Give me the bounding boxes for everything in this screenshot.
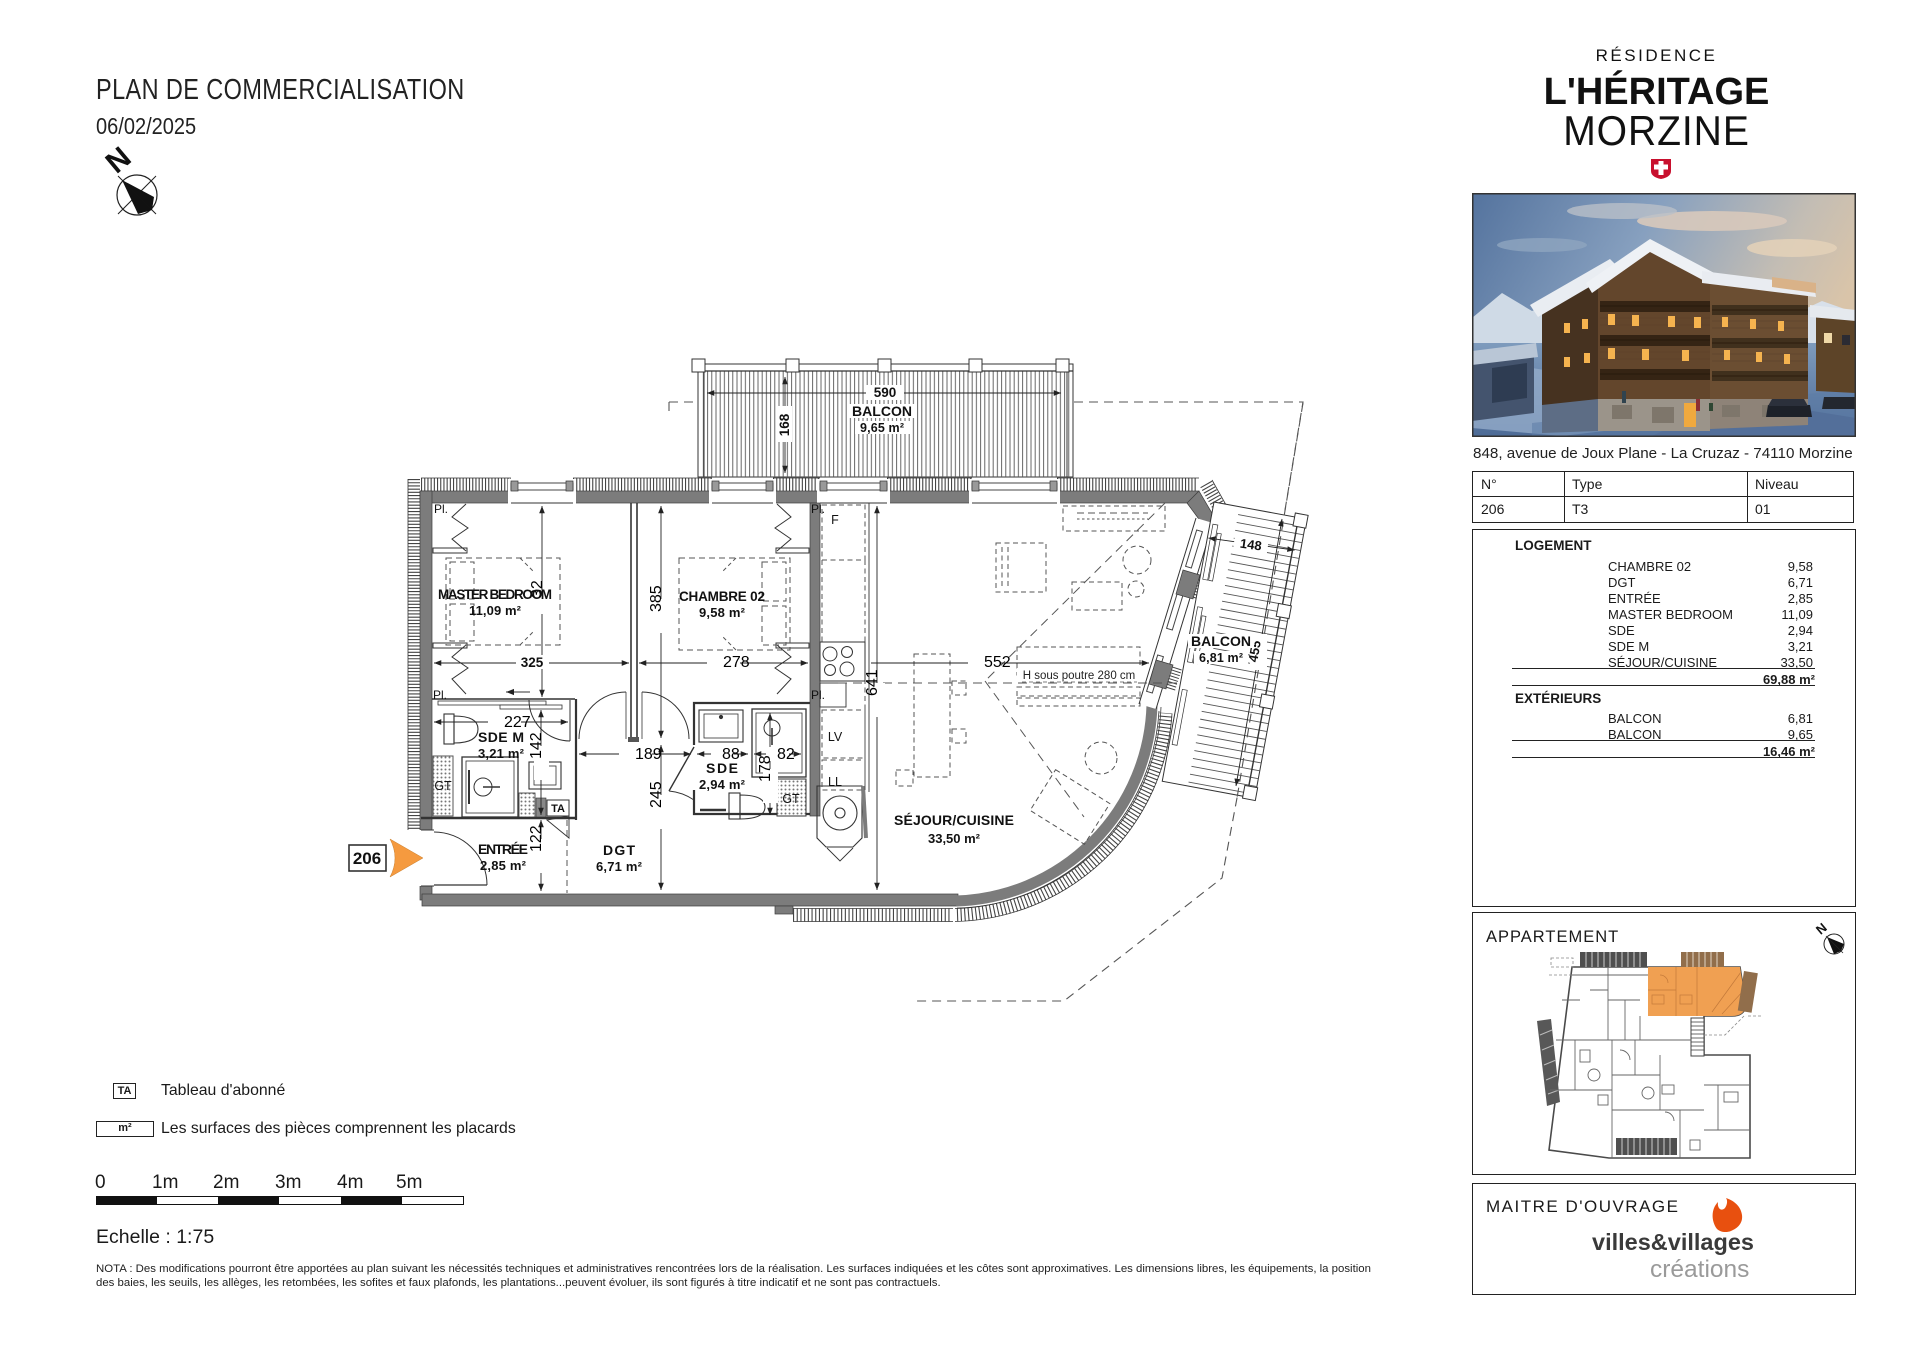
- svg-text:SDE M: SDE M: [478, 729, 524, 745]
- svg-text:178: 178: [757, 755, 774, 782]
- svg-text:385: 385: [648, 585, 665, 612]
- svg-text:Pl.: Pl.: [434, 502, 448, 516]
- svg-text:82: 82: [777, 746, 795, 763]
- svg-text:590: 590: [874, 385, 897, 400]
- svg-text:142: 142: [528, 732, 545, 759]
- svg-text:ENTRÉE: ENTRÉE: [478, 841, 528, 857]
- svg-text:168: 168: [777, 413, 792, 436]
- svg-text:BALCON: BALCON: [852, 403, 912, 419]
- svg-text:H sous poutre 280 cm: H sous poutre 280 cm: [1023, 670, 1136, 682]
- svg-text:189: 189: [635, 746, 662, 763]
- svg-text:9,58 m²: 9,58 m²: [699, 605, 746, 620]
- svg-text:Pl.: Pl.: [811, 688, 825, 702]
- svg-text:325: 325: [521, 655, 544, 670]
- svg-text:BALCON: BALCON: [1191, 633, 1251, 649]
- svg-text:MASTER BEDROOM: MASTER BEDROOM: [438, 587, 552, 602]
- svg-text:2,94 m²: 2,94 m²: [699, 777, 746, 792]
- svg-text:DGT: DGT: [603, 842, 635, 858]
- svg-text:TA: TA: [551, 803, 565, 815]
- svg-text:SÉJOUR/CUISINE: SÉJOUR/CUISINE: [894, 812, 1014, 828]
- svg-text:122: 122: [528, 825, 545, 852]
- svg-text:F: F: [831, 513, 839, 527]
- svg-text:6,71 m²: 6,71 m²: [596, 859, 643, 874]
- svg-text:33,50 m²: 33,50 m²: [928, 831, 981, 846]
- svg-text:148: 148: [1239, 536, 1263, 554]
- svg-text:6,81 m²: 6,81 m²: [1199, 651, 1243, 665]
- svg-text:LL: LL: [828, 775, 842, 789]
- svg-text:11,09 m²: 11,09 m²: [469, 603, 522, 618]
- svg-text:2,85 m²: 2,85 m²: [480, 858, 527, 873]
- svg-text:Pl.: Pl.: [433, 688, 447, 702]
- svg-text:278: 278: [723, 654, 750, 671]
- svg-text:CHAMBRE 02: CHAMBRE 02: [679, 589, 765, 604]
- svg-text:GT: GT: [782, 792, 800, 806]
- svg-text:LV: LV: [828, 730, 843, 744]
- svg-text:GT: GT: [434, 779, 452, 793]
- svg-text:9,65 m²: 9,65 m²: [860, 421, 904, 435]
- svg-text:3,21 m²: 3,21 m²: [478, 746, 525, 761]
- svg-text:552: 552: [984, 654, 1011, 671]
- svg-text:Pl.: Pl.: [811, 502, 825, 516]
- svg-text:245: 245: [648, 781, 665, 808]
- svg-text:SDE: SDE: [706, 760, 738, 776]
- svg-text:641: 641: [864, 669, 881, 696]
- svg-text:206: 206: [353, 849, 381, 868]
